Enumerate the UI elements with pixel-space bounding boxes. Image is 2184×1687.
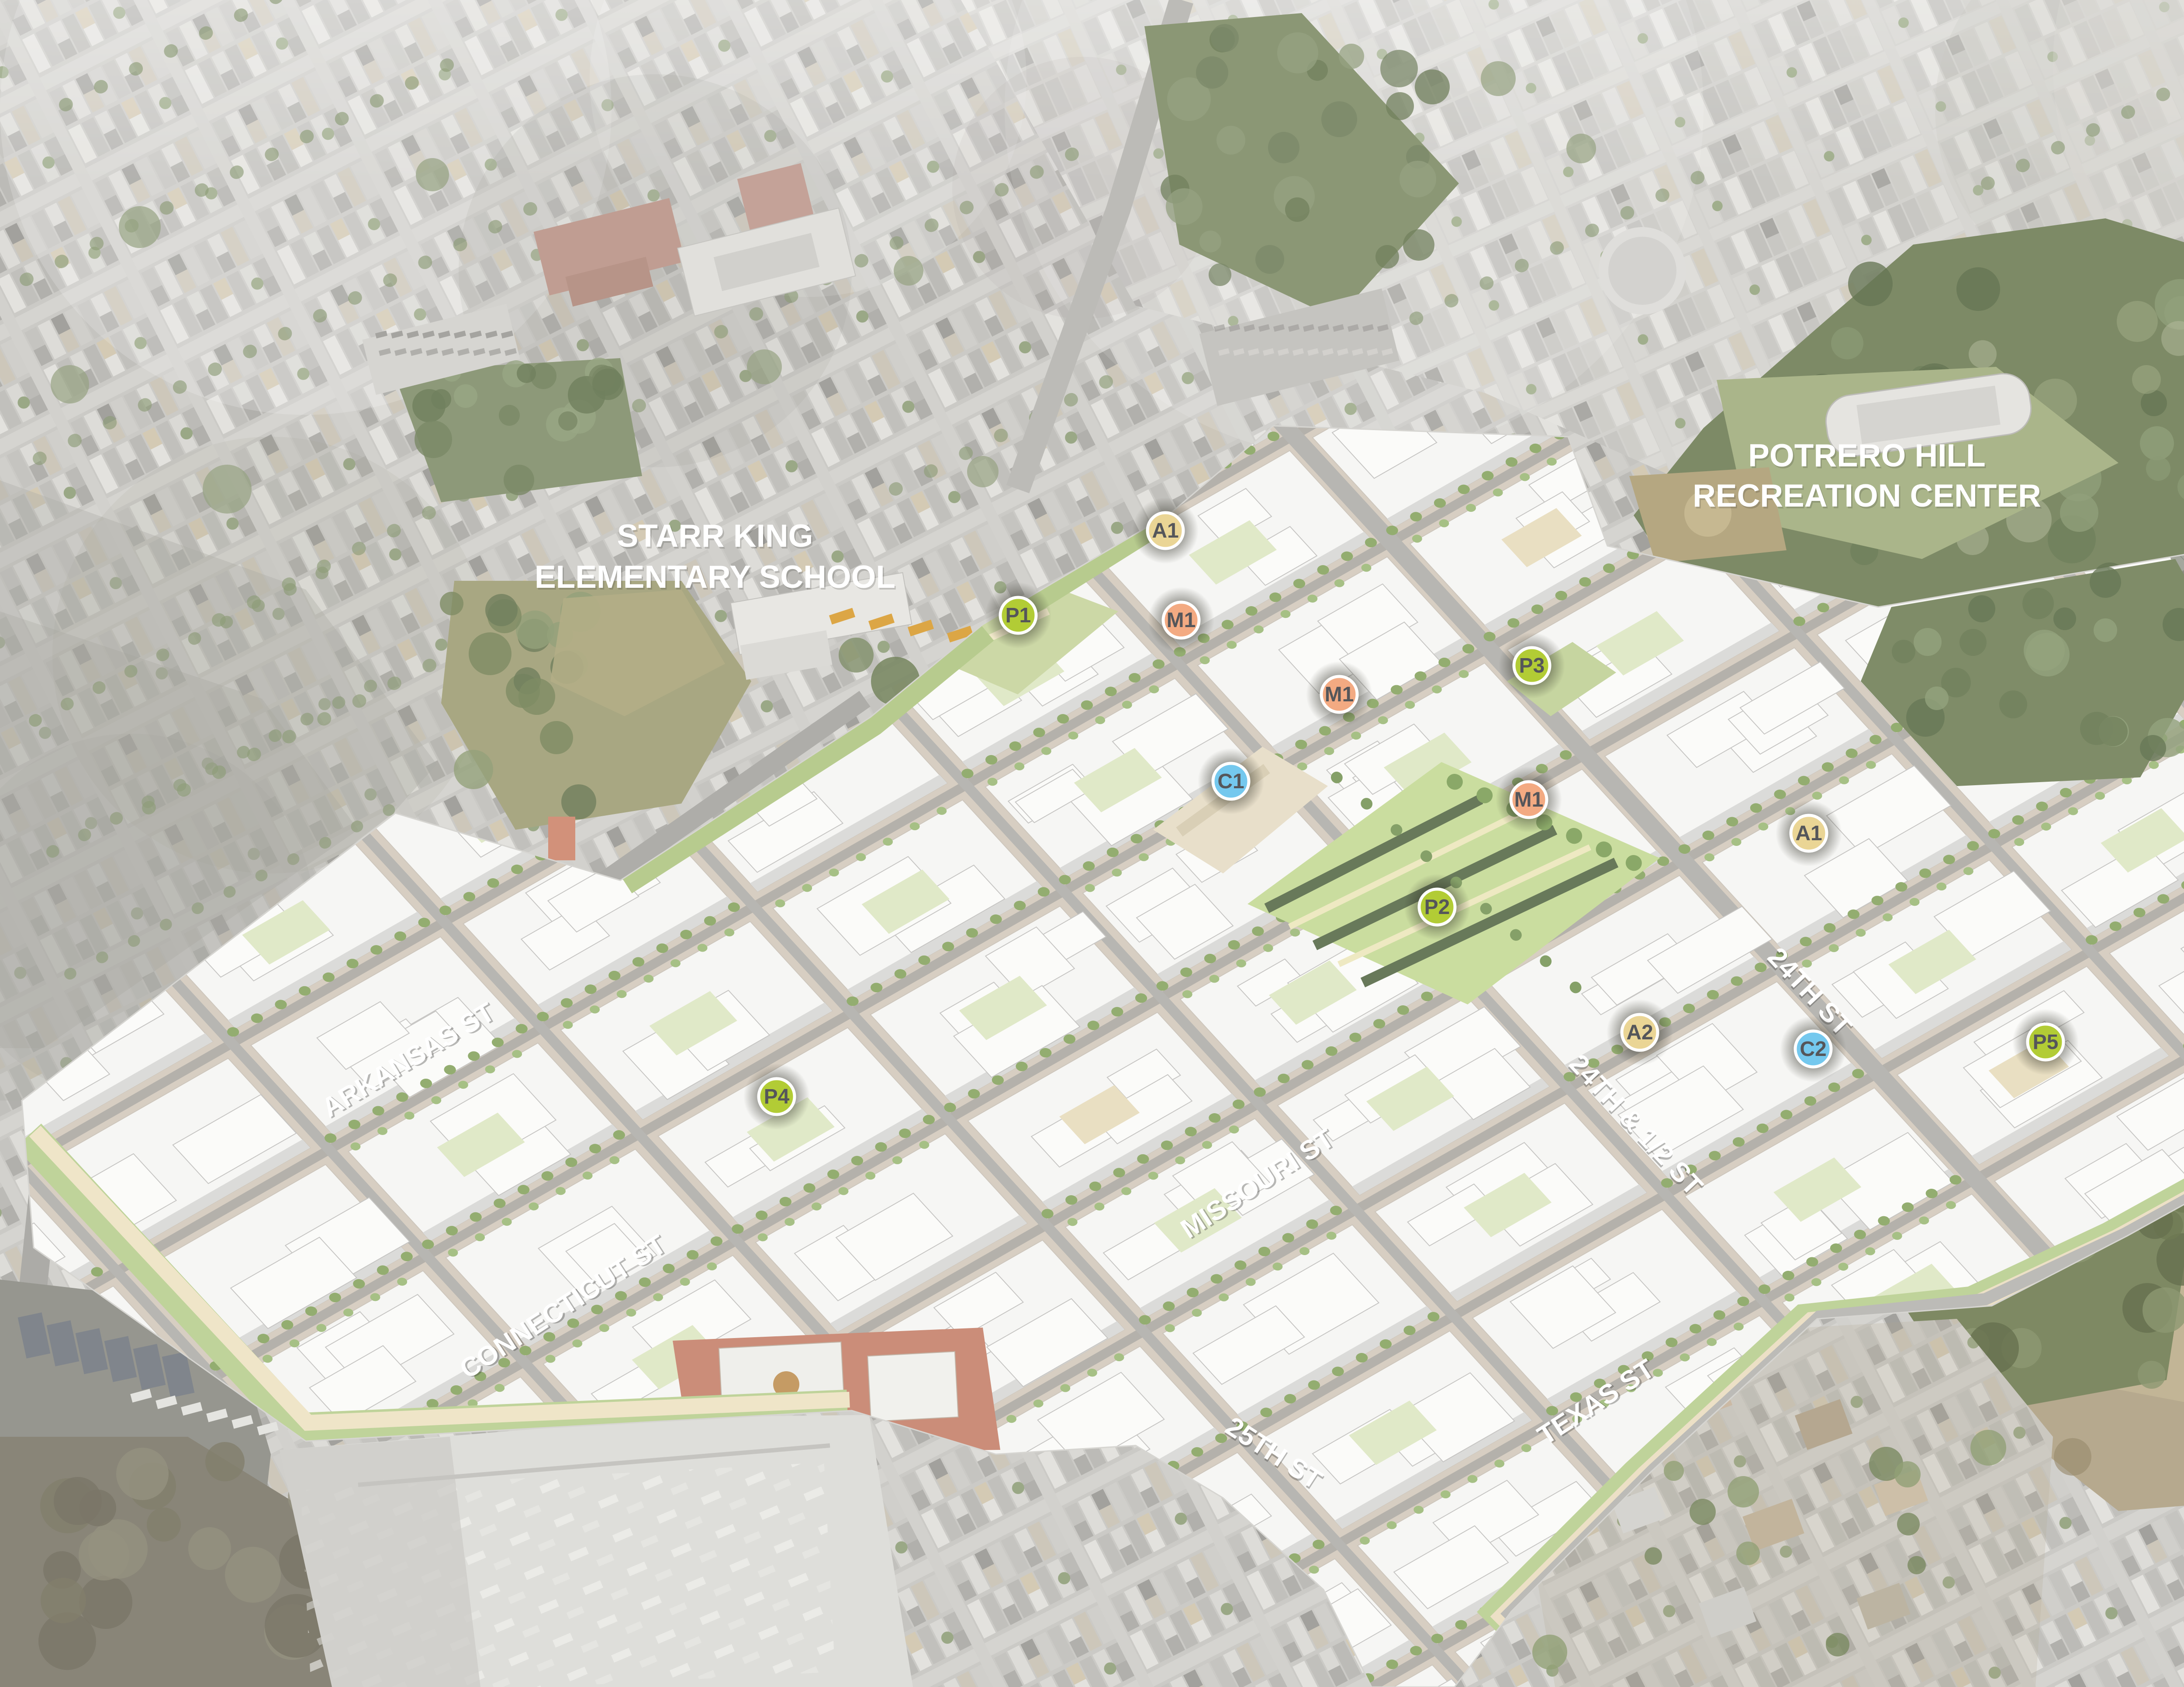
svg-text:P4: P4	[764, 1085, 790, 1108]
svg-text:M1: M1	[1514, 788, 1544, 811]
svg-text:P3: P3	[1519, 654, 1545, 677]
svg-text:A2: A2	[1626, 1021, 1653, 1044]
svg-text:RECREATION CENTER: RECREATION CENTER	[1693, 478, 2041, 514]
svg-text:P5: P5	[2033, 1031, 2059, 1054]
svg-text:STARR KING: STARR KING	[617, 518, 813, 554]
svg-text:A1: A1	[1152, 519, 1178, 542]
svg-text:C2: C2	[1800, 1038, 1826, 1061]
svg-text:POTRERO HILL: POTRERO HILL	[1748, 438, 1985, 473]
svg-text:P2: P2	[1424, 896, 1450, 919]
svg-text:ELEMENTARY SCHOOL: ELEMENTARY SCHOOL	[535, 559, 895, 595]
svg-text:C1: C1	[1217, 770, 1244, 793]
svg-text:M1: M1	[1325, 683, 1354, 706]
svg-text:P1: P1	[1006, 604, 1031, 627]
svg-text:M1: M1	[1167, 609, 1196, 632]
svg-text:A1: A1	[1795, 822, 1822, 845]
